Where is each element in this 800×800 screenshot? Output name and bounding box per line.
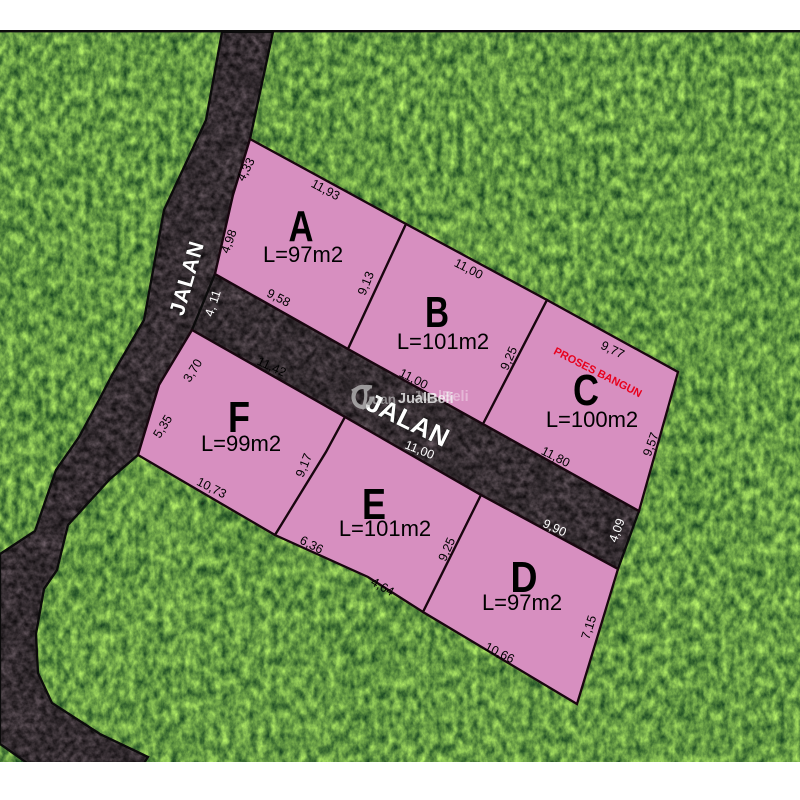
- svg-text:L=100m2: L=100m2: [546, 407, 638, 432]
- svg-text:L=97m2: L=97m2: [482, 590, 562, 615]
- svg-text:L=99m2: L=99m2: [201, 431, 281, 456]
- svg-text:L=97m2: L=97m2: [263, 242, 343, 267]
- svg-text:uan: uan: [372, 392, 396, 407]
- svg-text:L=101m2: L=101m2: [397, 329, 489, 354]
- svg-text:JualBeli: JualBeli: [413, 389, 469, 405]
- svg-text:L=101m2: L=101m2: [339, 516, 431, 541]
